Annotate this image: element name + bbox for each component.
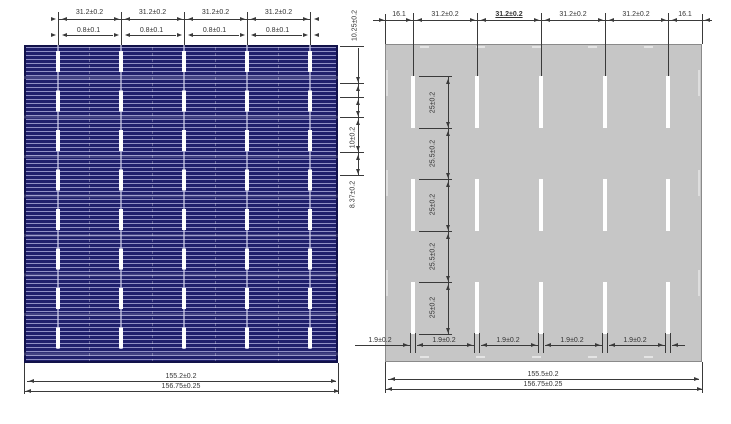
arrowhead [595, 343, 602, 347]
dim-tick [474, 333, 475, 353]
dim-label-pad-pitch: 31.2±0.2 [608, 10, 664, 19]
dim-label-print-width: 155.2±0.2 [81, 372, 281, 381]
arrowhead [446, 328, 450, 335]
extension-line [310, 12, 311, 45]
dim-label-busbar-width: 0.8±0.1 [127, 26, 176, 36]
dim-label-pad-length: 25±0.2 [429, 286, 438, 330]
dim-line [419, 345, 474, 346]
front-busbar [119, 45, 123, 349]
dim-label-pad-length: 25±0.2 [429, 183, 438, 227]
arrowhead [312, 33, 319, 37]
front-busbar [308, 45, 312, 349]
arrowhead [177, 17, 184, 21]
arrowhead [446, 225, 450, 232]
dim-line [355, 345, 410, 346]
dim-label-pad-width: 1.9±0.2 [545, 336, 599, 345]
extension-line [413, 13, 414, 76]
arrowhead [446, 180, 450, 187]
arrowhead [467, 343, 474, 347]
arrowhead [27, 379, 34, 383]
arrowhead [446, 77, 450, 84]
extension-line [121, 12, 122, 45]
arrowhead [240, 33, 247, 37]
dim-line [610, 345, 665, 346]
extension-line [668, 13, 669, 76]
arrowhead [60, 17, 67, 21]
dim-line [547, 345, 602, 346]
front-busbar [182, 45, 186, 349]
dim-label-pad-width: 1.9±0.2 [353, 336, 407, 345]
dim-label-pad-width: 1.9±0.2 [608, 336, 662, 345]
arrowhead [177, 33, 184, 37]
arrowhead [303, 33, 310, 37]
dim-label-cell-width: 156.75±0.25 [443, 380, 643, 389]
arrowhead [249, 17, 256, 21]
arrowhead [240, 17, 247, 21]
dim-tick [665, 333, 666, 353]
arrowhead [697, 387, 704, 391]
arrowhead [446, 173, 450, 180]
arrowhead [312, 17, 319, 21]
extension-line [247, 12, 248, 45]
dim-label-pad-gap: 25.5±0.2 [429, 235, 438, 279]
dim-label-pad-gap: 10±0.2 [349, 120, 358, 156]
dim-tick [538, 333, 539, 353]
arrowhead [694, 377, 701, 381]
arrowhead [356, 111, 360, 118]
arrowhead [356, 98, 360, 105]
extension-line [541, 13, 542, 76]
arrowhead [385, 387, 392, 391]
arrowhead [114, 33, 121, 37]
extension-line [184, 12, 185, 45]
dim-label-pad-length: 8.37±0.2 [349, 173, 358, 217]
arrowhead [60, 33, 67, 37]
dim-label-cell-width: 156.75±0.25 [81, 382, 281, 391]
front-busbar [245, 45, 249, 349]
arrowhead [331, 379, 338, 383]
dim-label-pad-gap: 25.5±0.2 [429, 132, 438, 176]
arrowhead [403, 343, 410, 347]
dim-line [448, 76, 449, 334]
dim-label-pad-width: 1.9±0.2 [417, 336, 471, 345]
dim-tick [410, 333, 411, 353]
dim-label-busbar-pitch: 31.2±0.2 [186, 8, 245, 17]
front-mid-dash-line [215, 47, 216, 361]
dim-label-edge-margin: 16.1 [670, 10, 700, 19]
arrowhead [356, 77, 360, 84]
back-solder-pad-column [411, 76, 415, 334]
dim-label-pad-width: 1.9±0.2 [481, 336, 535, 345]
dim-label-edge-offset: 10.25±0.2 [351, 3, 360, 49]
connector-line [340, 97, 364, 98]
dim-label-busbar-pitch: 31.2±0.2 [60, 8, 119, 17]
arrowhead [446, 232, 450, 239]
arrowhead [123, 33, 130, 37]
dim-label-pad-pitch: 31.2±0.2 [417, 10, 473, 19]
arrowhead [186, 17, 193, 21]
back-solder-pad-column [539, 76, 543, 334]
arrowhead [334, 389, 341, 393]
dim-label-busbar-width: 0.8±0.1 [190, 26, 239, 36]
arrowhead [51, 17, 58, 21]
dim-tick [602, 333, 603, 353]
back-edge-dashes [386, 70, 388, 340]
arrowhead [186, 33, 193, 37]
extension-line [605, 13, 606, 76]
arrowhead [658, 343, 665, 347]
arrowhead [114, 17, 121, 21]
arrowhead [303, 17, 310, 21]
arrowhead [446, 122, 450, 129]
dim-label-busbar-pitch: 31.2±0.2 [249, 8, 308, 17]
arrowhead [446, 129, 450, 136]
arrowhead [388, 377, 395, 381]
dim-label-busbar-pitch: 31.2±0.2 [123, 8, 182, 17]
arrowhead [51, 33, 58, 37]
back-edge-dashes [698, 70, 700, 340]
dim-line [58, 19, 310, 20]
dim-label-edge-margin: 16.1 [384, 10, 414, 19]
arrowhead [671, 343, 678, 347]
arrowhead [446, 276, 450, 283]
dim-label-pad-length: 25±0.2 [429, 81, 438, 125]
connector-line [340, 117, 364, 118]
back-edge-dashes [420, 46, 682, 48]
dim-label-busbar-width: 0.8±0.1 [64, 26, 113, 36]
arrowhead [123, 17, 130, 21]
front-mid-dash-line [278, 47, 279, 361]
front-mid-dash-line [152, 47, 153, 361]
dim-label-busbar-width: 0.8±0.1 [253, 26, 302, 36]
dim-label-print-width: 155.5±0.2 [443, 370, 643, 379]
dim-line [24, 391, 339, 392]
dim-line [483, 345, 538, 346]
front-mid-dash-line [89, 47, 90, 361]
arrowhead [446, 283, 450, 290]
dim-line [385, 389, 702, 390]
solar-cell-drawing-sheet: 31.2±0.2 31.2±0.2 31.2±0.2 31.2±0.2 0.8±… [0, 0, 731, 424]
dim-label-pad-pitch: 31.2±0.2 [481, 10, 537, 19]
connector-line [340, 83, 364, 84]
dim-label-pad-pitch: 31.2±0.2 [545, 10, 601, 19]
back-solder-pad-column [475, 76, 479, 334]
arrowhead [531, 343, 538, 347]
arrowhead [249, 33, 256, 37]
back-solder-pad-column [666, 76, 670, 334]
extension-line [58, 12, 59, 45]
back-edge-dashes [420, 356, 682, 358]
extension-line [477, 13, 478, 76]
front-busbar [56, 45, 60, 349]
front-segment-bands [24, 45, 338, 363]
back-solder-pad-column [603, 76, 607, 334]
arrowhead [356, 84, 360, 91]
arrowhead [703, 18, 710, 22]
arrowhead [24, 389, 31, 393]
